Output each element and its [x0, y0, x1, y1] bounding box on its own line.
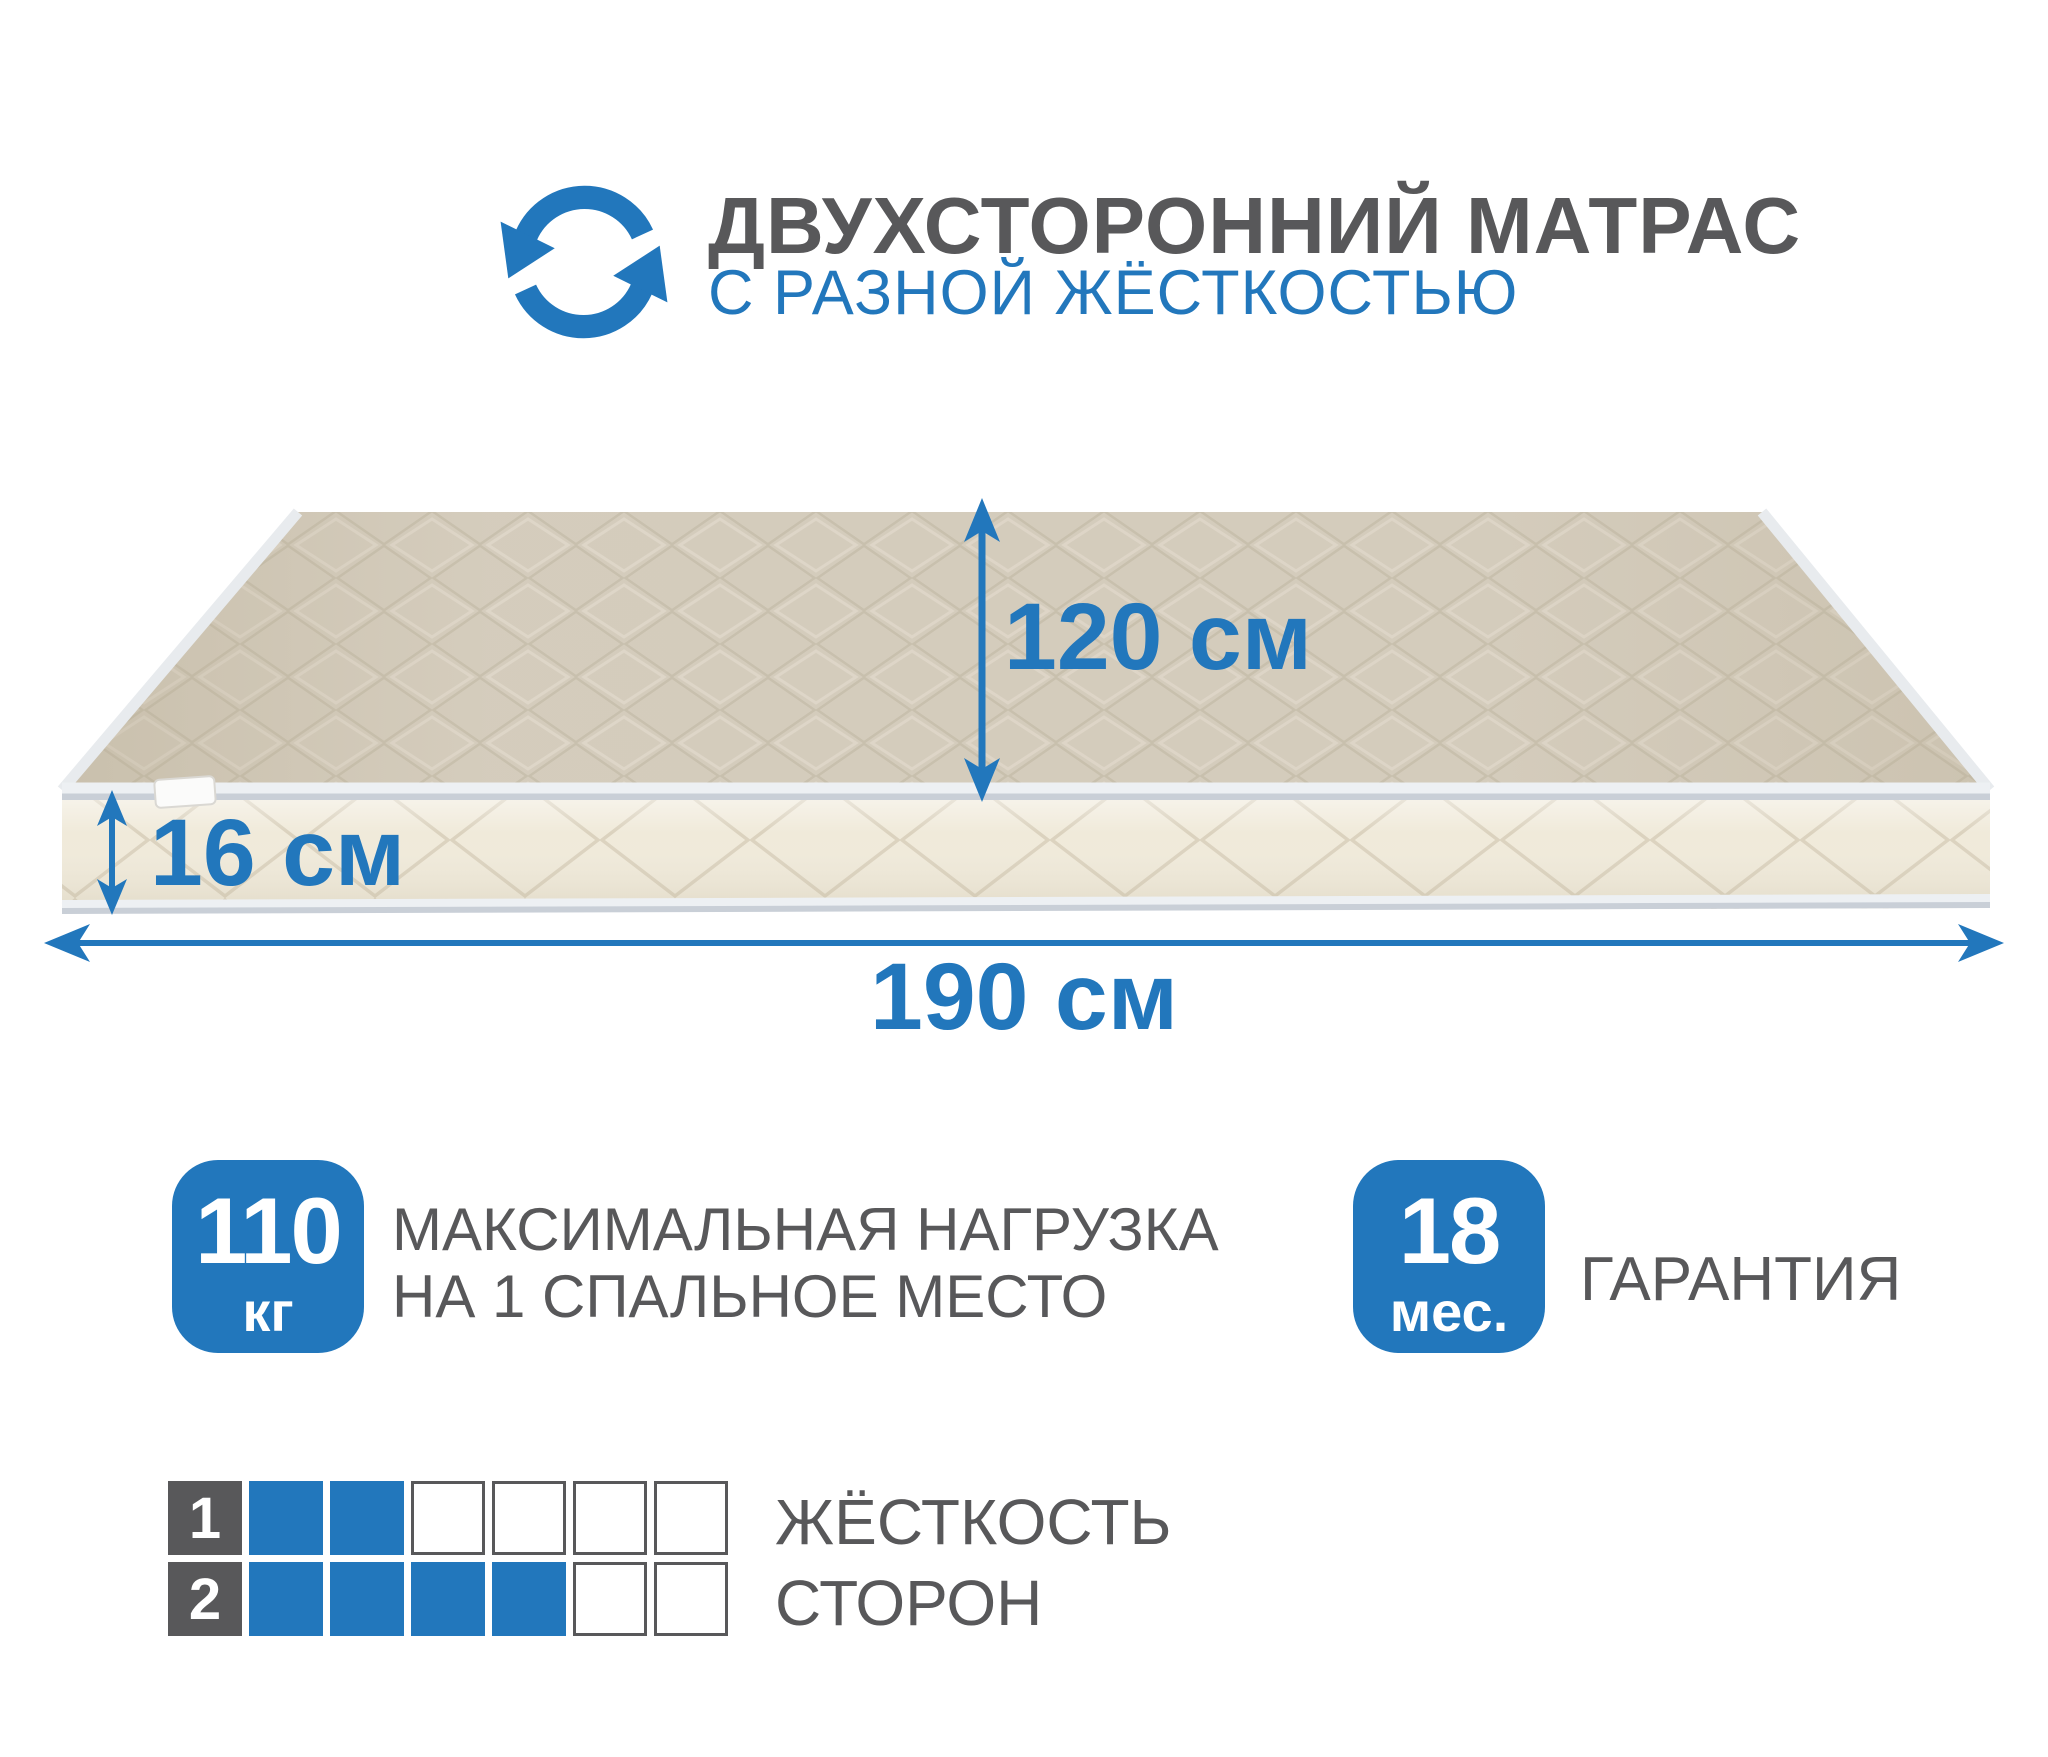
warranty-badge: 18 мес. — [1353, 1160, 1545, 1353]
firmness-cell-empty — [573, 1562, 647, 1636]
depth-dimension-label: 120 см — [1004, 590, 1312, 685]
max-load-badge: 110 кг — [172, 1160, 364, 1353]
firmness-cell-empty — [654, 1562, 728, 1636]
warranty-label: ГАРАНТИЯ — [1580, 1246, 1901, 1313]
length-dimension-label: 190 см — [870, 950, 1178, 1045]
firmness-cells — [249, 1562, 728, 1636]
rotate-arrows-icon — [498, 176, 670, 348]
mattress-infographic: ДВУХСТОРОННИЙ МАТРАС С РАЗНОЙ ЖЁСТКОСТЬЮ — [0, 0, 2048, 1757]
firmness-cell-empty — [573, 1481, 647, 1555]
firmness-cell-empty — [411, 1481, 485, 1555]
firmness-cell-filled — [330, 1562, 404, 1636]
max-load-label: МАКСИМАЛЬНАЯ НАГРУЗКА НА 1 СПАЛЬНОЕ МЕСТ… — [392, 1196, 1219, 1330]
firmness-row-2: 2 — [168, 1562, 728, 1636]
firmness-row-number: 1 — [168, 1481, 242, 1555]
firmness-row-1: 1 — [168, 1481, 728, 1555]
page-subtitle: С РАЗНОЙ ЖЁСТКОСТЬЮ — [708, 262, 1518, 325]
max-load-unit: кг — [172, 1284, 364, 1340]
firmness-cell-filled — [492, 1562, 566, 1636]
firmness-cell-filled — [249, 1562, 323, 1636]
firmness-cell-filled — [249, 1481, 323, 1555]
warranty-unit: мес. — [1353, 1284, 1545, 1340]
firmness-cell-empty — [492, 1481, 566, 1555]
max-load-value: 110 — [172, 1184, 364, 1278]
firmness-label-line2: СТОРОН — [775, 1571, 1042, 1635]
page-title: ДВУХСТОРОННИЙ МАТРАС — [708, 186, 1801, 266]
firmness-row-number: 2 — [168, 1562, 242, 1636]
firmness-label-line1: ЖЁСТКОСТЬ — [775, 1490, 1172, 1554]
firmness-cell-filled — [330, 1481, 404, 1555]
firmness-cell-empty — [654, 1481, 728, 1555]
max-load-label-line1: МАКСИМАЛЬНАЯ НАГРУЗКА — [392, 1196, 1219, 1263]
warranty-value: 18 — [1353, 1184, 1545, 1278]
firmness-cell-filled — [411, 1562, 485, 1636]
firmness-cells — [249, 1481, 728, 1555]
mattress-illustration — [0, 380, 2048, 1000]
height-dimension-label: 16 см — [150, 806, 405, 901]
rotate-arrows-icon-svg — [498, 176, 670, 348]
max-load-label-line2: НА 1 СПАЛЬНОЕ МЕСТО — [392, 1263, 1219, 1330]
